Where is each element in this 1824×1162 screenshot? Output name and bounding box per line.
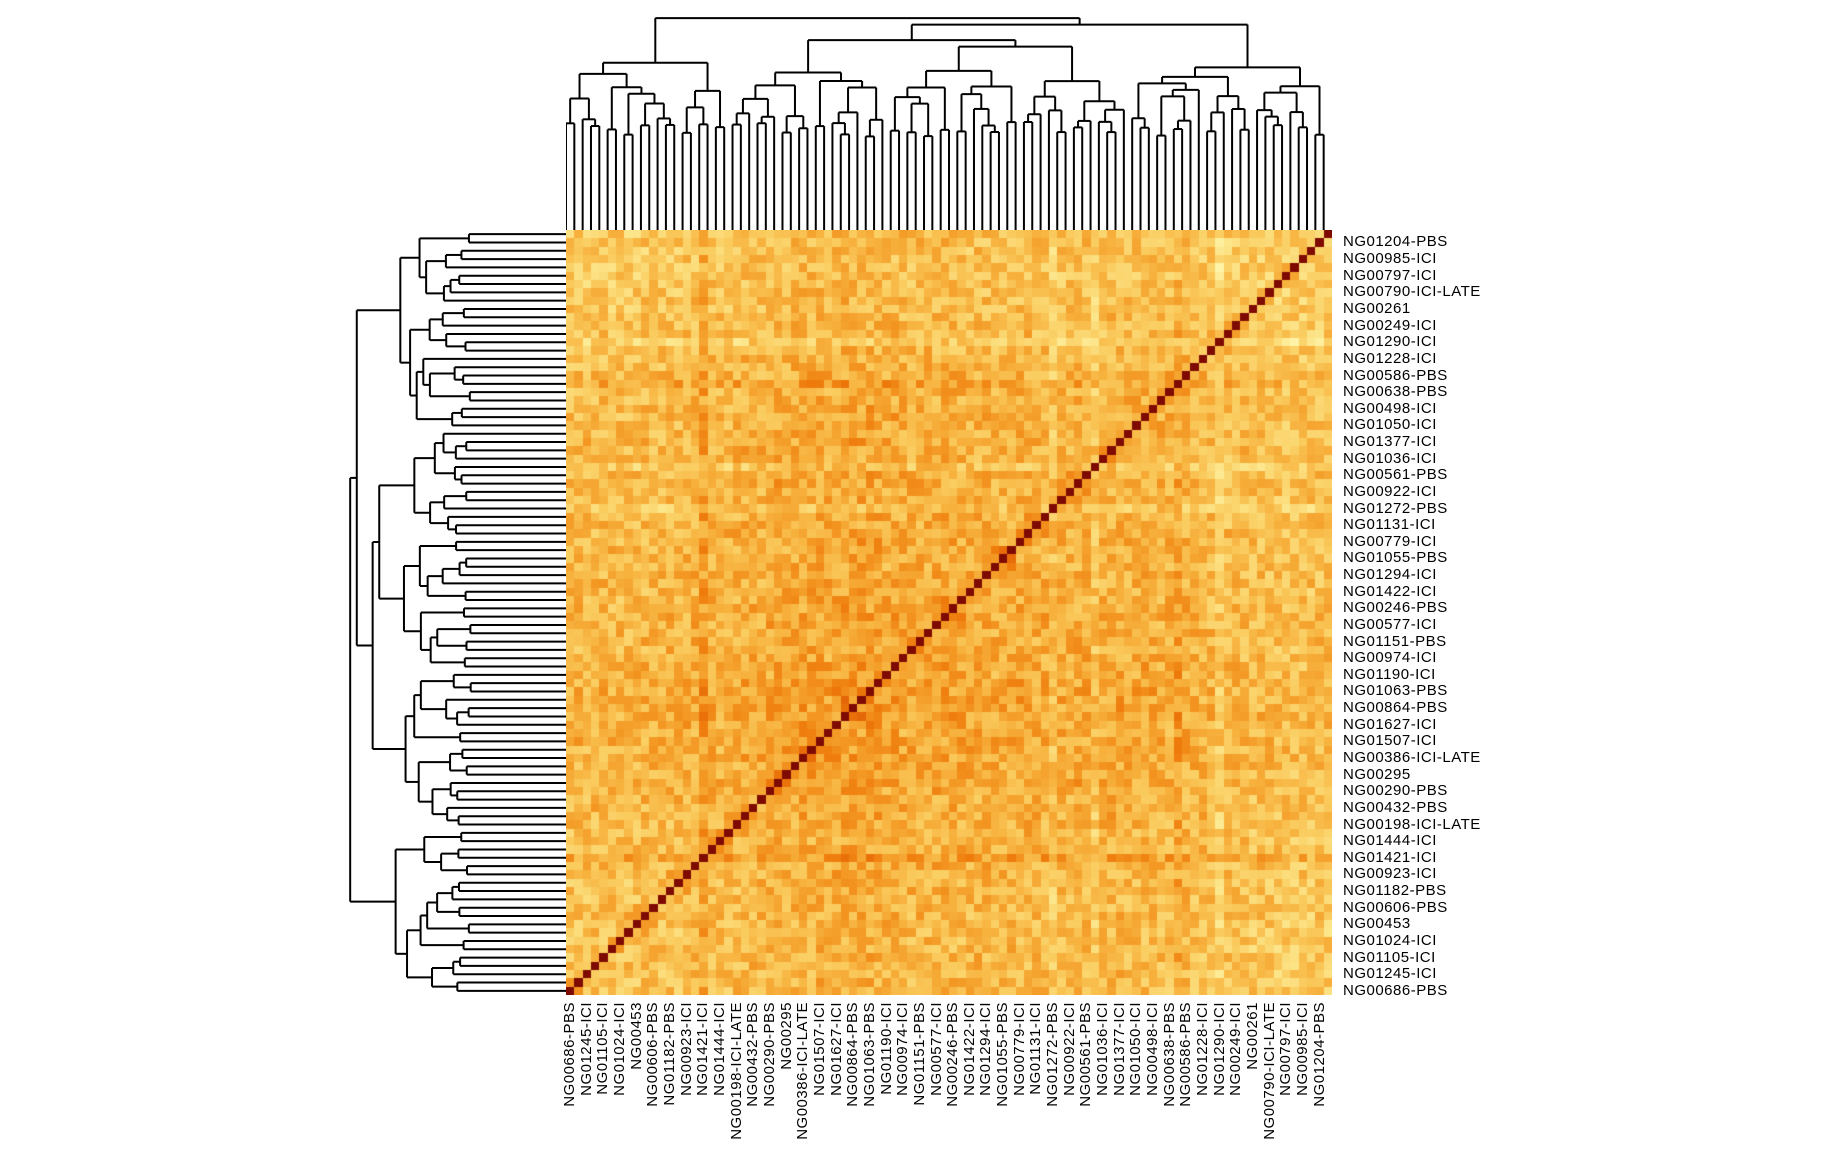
column-label: NG01294-ICI — [978, 1002, 994, 1162]
column-label: NG00295 — [779, 1002, 795, 1162]
column-label: NG01055-PBS — [995, 1002, 1011, 1162]
row-label: NG01105-ICI — [1343, 950, 1436, 966]
row-label: NG00261 — [1343, 301, 1411, 317]
row-label: NG01421-ICI — [1343, 850, 1437, 866]
row-label: NG01131-ICI — [1343, 517, 1436, 533]
column-label: NG00922-ICI — [1062, 1002, 1078, 1162]
row-label: NG00790-ICI-LATE — [1343, 284, 1481, 300]
column-label: NG01105-ICI — [595, 1002, 611, 1162]
column-label: NG01627-ICI — [829, 1002, 845, 1162]
column-label: NG00779-ICI — [1012, 1002, 1028, 1162]
column-label: NG01245-ICI — [579, 1002, 595, 1162]
column-label: NG00586-PBS — [1178, 1002, 1194, 1162]
column-label: NG01421-ICI — [695, 1002, 711, 1162]
row-label: NG01422-ICI — [1343, 584, 1437, 600]
row-label: NG01444-ICI — [1343, 833, 1437, 849]
column-label: NG01151-PBS — [912, 1002, 928, 1162]
column-label: NG00864-PBS — [845, 1002, 861, 1162]
column-label: NG00290-PBS — [762, 1002, 778, 1162]
row-label: NG01245-ICI — [1343, 966, 1437, 982]
row-label: NG00290-PBS — [1343, 783, 1448, 799]
column-label: NG01204-PBS — [1312, 1002, 1328, 1162]
row-label: NG00922-ICI — [1343, 484, 1437, 500]
column-label: NG01422-ICI — [962, 1002, 978, 1162]
column-label: NG01050-ICI — [1128, 1002, 1144, 1162]
row-label: NG00198-ICI-LATE — [1343, 817, 1481, 833]
row-label: NG01228-ICI — [1343, 351, 1437, 367]
row-label: NG00577-ICI — [1343, 617, 1437, 633]
row-label: NG00606-PBS — [1343, 900, 1448, 916]
row-label: NG01063-PBS — [1343, 683, 1448, 699]
row-label: NG00985-ICI — [1343, 251, 1437, 267]
column-label: NG01190-ICI — [879, 1002, 895, 1162]
row-label: NG01294-ICI — [1343, 567, 1437, 583]
row-label: NG01377-ICI — [1343, 434, 1437, 450]
column-label: NG01036-ICI — [1095, 1002, 1111, 1162]
column-label: NG01272-PBS — [1045, 1002, 1061, 1162]
column-label: NG00974-ICI — [895, 1002, 911, 1162]
column-label: NG00561-PBS — [1078, 1002, 1094, 1162]
column-label: NG01228-ICI — [1195, 1002, 1211, 1162]
column-label: NG00797-ICI — [1278, 1002, 1294, 1162]
column-label: NG00790-ICI-LATE — [1262, 1002, 1278, 1162]
row-label: NG00246-PBS — [1343, 600, 1448, 616]
column-label: NG00498-ICI — [1145, 1002, 1161, 1162]
column-label: NG01024-ICI — [612, 1002, 628, 1162]
row-label: NG01024-ICI — [1343, 933, 1437, 949]
row-label: NG01272-PBS — [1343, 501, 1448, 517]
row-label: NG01050-ICI — [1343, 417, 1437, 433]
column-label: NG00606-PBS — [645, 1002, 661, 1162]
column-label: NG00577-ICI — [929, 1002, 945, 1162]
column-label: NG01290-ICI — [1212, 1002, 1228, 1162]
cluster-heatmap-figure: NG01204-PBSNG00985-ICING00797-ICING00790… — [0, 0, 1824, 1152]
row-label: NG01190-ICI — [1343, 667, 1436, 683]
column-label: NG00638-PBS — [1162, 1002, 1178, 1162]
column-label: NG01182-PBS — [662, 1002, 678, 1162]
row-label: NG01204-PBS — [1343, 234, 1448, 250]
row-label: NG01290-ICI — [1343, 334, 1437, 350]
row-label: NG00797-ICI — [1343, 268, 1437, 284]
row-label: NG00923-ICI — [1343, 866, 1437, 882]
row-label: NG00498-ICI — [1343, 401, 1437, 417]
row-label: NG00249-ICI — [1343, 318, 1437, 334]
row-label: NG00864-PBS — [1343, 700, 1448, 716]
column-label: NG00923-ICI — [679, 1002, 695, 1162]
column-label: NG01063-PBS — [862, 1002, 878, 1162]
row-label: NG00432-PBS — [1343, 800, 1448, 816]
column-label: NG00453 — [629, 1002, 645, 1162]
column-label: NG00261 — [1245, 1002, 1261, 1162]
column-label: NG00246-PBS — [945, 1002, 961, 1162]
row-label: NG00295 — [1343, 767, 1411, 783]
row-label: NG01055-PBS — [1343, 550, 1448, 566]
row-label: NG00686-PBS — [1343, 983, 1448, 999]
row-label: NG00586-PBS — [1343, 368, 1448, 384]
heatmap-matrix — [566, 230, 1332, 995]
column-label: NG00249-ICI — [1228, 1002, 1244, 1162]
row-label: NG01507-ICI — [1343, 733, 1437, 749]
row-label: NG01151-PBS — [1343, 634, 1447, 650]
column-label: NG01131-ICI — [1028, 1002, 1044, 1162]
row-label: NG00386-ICI-LATE — [1343, 750, 1481, 766]
column-label: NG00985-ICI — [1295, 1002, 1311, 1162]
column-label: NG00198-ICI-LATE — [729, 1002, 745, 1162]
row-label: NG01627-ICI — [1343, 717, 1437, 733]
column-label: NG01507-ICI — [812, 1002, 828, 1162]
left-dendrogram — [342, 230, 566, 995]
row-label: NG00561-PBS — [1343, 467, 1448, 483]
row-label: NG00453 — [1343, 916, 1411, 932]
column-label: NG01377-ICI — [1112, 1002, 1128, 1162]
row-label: NG00974-ICI — [1343, 650, 1437, 666]
top-dendrogram — [566, 6, 1332, 230]
column-label: NG00686-PBS — [562, 1002, 578, 1162]
row-label: NG00779-ICI — [1343, 534, 1437, 550]
column-label: NG00432-PBS — [745, 1002, 761, 1162]
column-label: NG00386-ICI-LATE — [795, 1002, 811, 1162]
column-label: NG01444-ICI — [712, 1002, 728, 1162]
row-label: NG01182-PBS — [1343, 883, 1447, 899]
row-label: NG00638-PBS — [1343, 384, 1448, 400]
row-label: NG01036-ICI — [1343, 451, 1437, 467]
